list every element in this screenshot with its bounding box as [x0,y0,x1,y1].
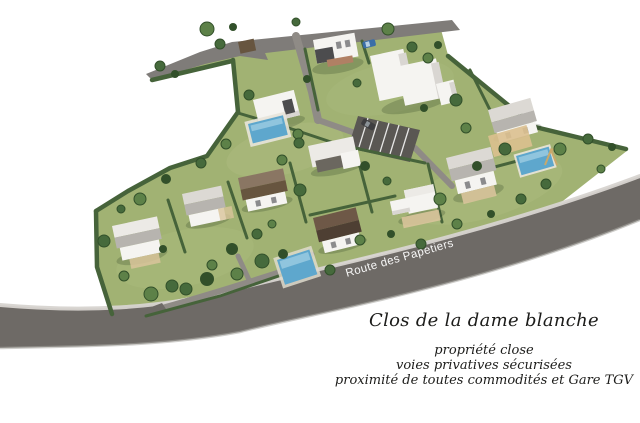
tagline-block: propriété close voies privatives sécuris… [324,344,640,388]
tagline-line-3: proximité de toutes commodités et Gare T… [324,374,640,389]
brochure-page: Route des Papetiers Clos de la dame blan… [0,0,640,423]
tagline-line-2: voies privatives sécurisées [324,359,640,374]
tagline-line-1: propriété close [324,344,640,359]
development-title: Clos de la dame blanche [334,310,634,331]
